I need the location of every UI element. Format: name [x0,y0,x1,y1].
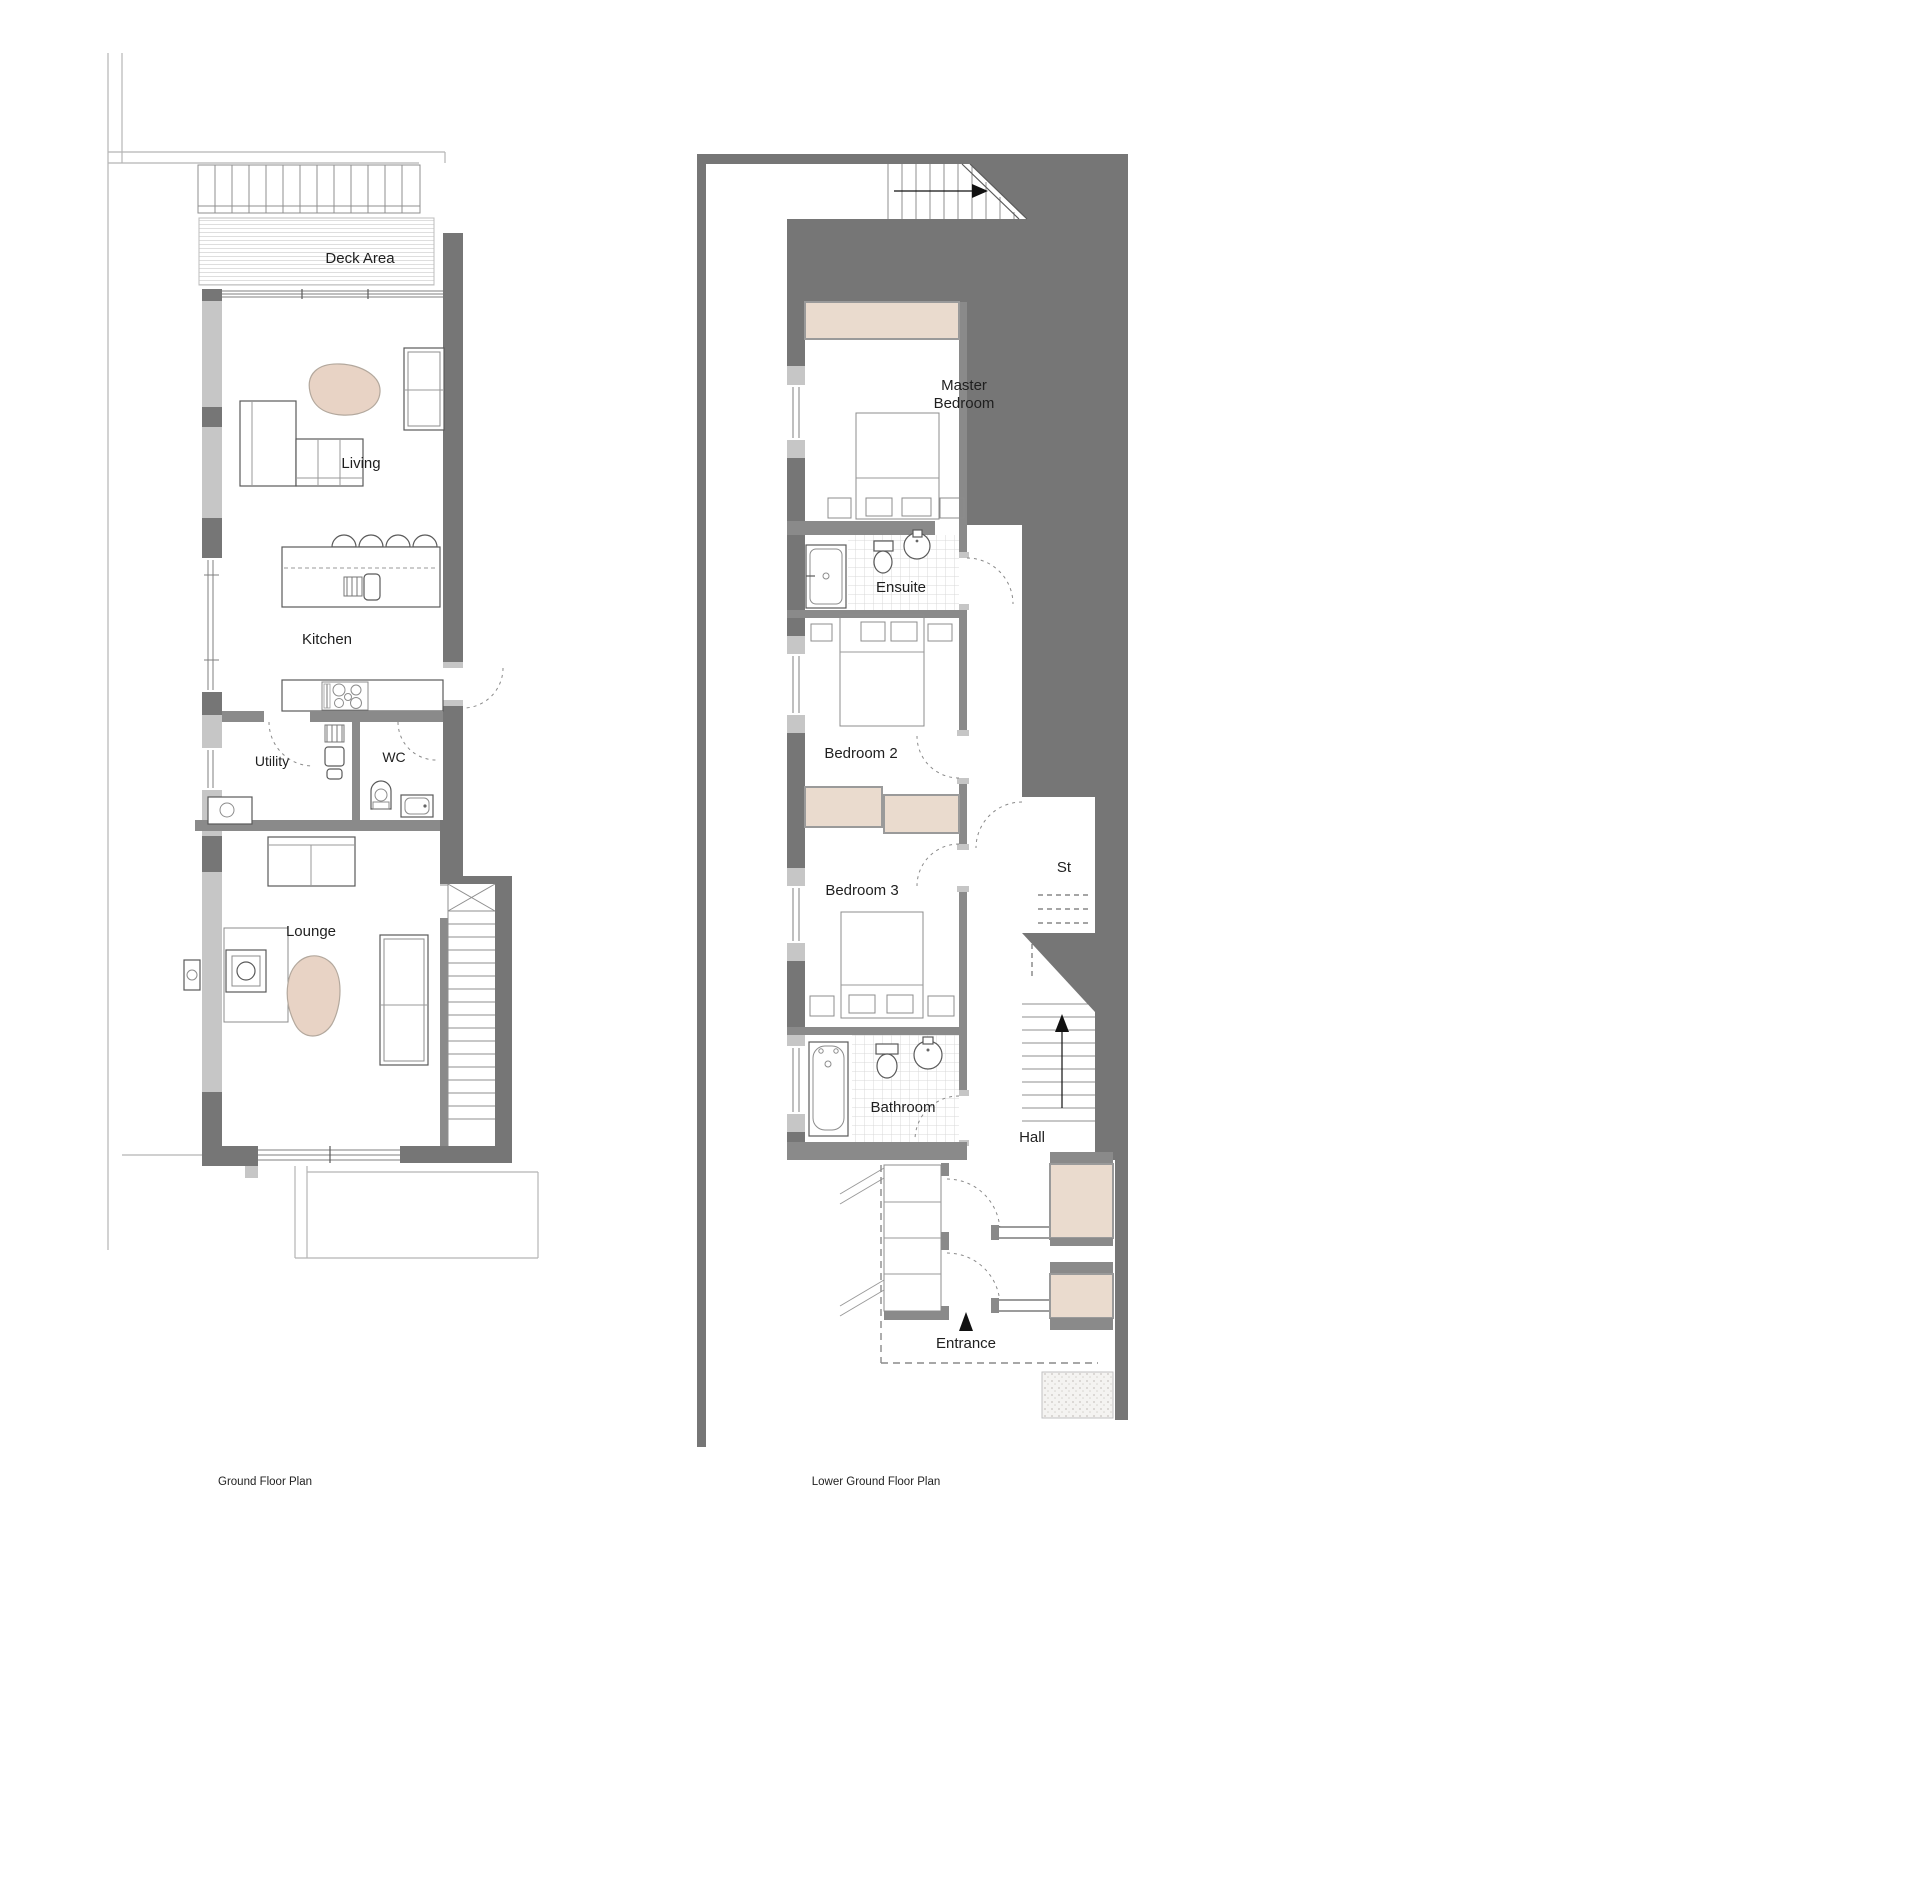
right-wall [443,233,503,884]
storage-shelves [1038,895,1090,923]
storage-door-arc [976,802,1022,848]
island-drainer [344,577,362,596]
floor-plan-sheet: Deck Area [0,0,1920,1887]
kitchen: Kitchen [282,535,443,711]
master-wardrobe [805,302,959,339]
entrance-label: Entrance [936,1335,996,1352]
bedroom3-bed [810,912,954,1018]
entrance-mat [1042,1372,1113,1418]
bedroom-3: Bedroom 3 [810,844,959,1018]
bedroom2-door-arc [917,736,959,778]
ensuite-door-arc [967,558,1013,604]
ensuite: Ensuite [806,530,1013,610]
bathroom-label: Bathroom [870,1099,935,1116]
toilet-icon [371,781,391,809]
deck-area: Deck Area [199,218,434,285]
bathroom-tiles [852,1035,959,1142]
closet-section-marks [840,1168,884,1316]
wc-label: WC [382,749,405,765]
stair-direction-arrow [894,184,988,198]
media-unit [404,348,444,430]
deck-area-label: Deck Area [325,250,395,267]
utility-label: Utility [255,753,289,769]
wood-stove-icon [184,928,288,1022]
master-bedroom-label-2: Bedroom [934,395,995,412]
stairs-up-arrow [1055,1014,1069,1108]
deck-stairs [198,165,420,213]
utility-room: Utility [208,725,344,824]
kitchen-counter [282,680,443,711]
lower-ground-floor-caption: Lower Ground Floor Plan [812,1476,940,1488]
lower-ground-floor-plan: Master Bedroom [697,154,1128,1488]
master-bedroom-label-1: Master [941,377,987,394]
master-bed [828,413,964,519]
bedroom-2: Bedroom 2 [811,615,959,778]
internal-stairs-lower [1022,933,1095,1121]
ensuite-toilet-icon [874,541,893,573]
ground-floor-caption: Ground Floor Plan [218,1476,312,1488]
internal-stairs-ground [448,884,495,1148]
kitchen-island [282,547,440,607]
utility-sink [208,797,252,824]
entrance-side-walls [1050,1152,1113,1330]
room-walls [787,302,969,1160]
bedroom2-bed [811,615,952,726]
bottom-wall [202,1114,512,1178]
bathroom-toilet-icon [876,1044,898,1078]
ground-floor-plan: Deck Area [108,53,538,1488]
bar-stools [332,535,437,547]
living-room: Living [240,348,444,486]
lounge-label: Lounge [286,923,336,940]
kitchen-label: Kitchen [302,631,352,648]
ensuite-label: Ensuite [876,579,926,596]
lounge-rug [287,956,340,1036]
daybed [380,935,428,1065]
shower-icon [806,545,846,608]
stair-annex [440,820,512,1163]
bedroom-wardrobes [805,787,959,833]
entrance-arrow [959,1312,973,1331]
lounge-sofa [268,837,355,886]
wc-basin [401,795,433,817]
wc-room: WC [371,749,433,817]
bedroom3-label: Bedroom 3 [825,882,898,899]
top-window-wall [202,289,443,301]
entrance-closet [884,1165,941,1311]
left-wall [202,289,222,1146]
bathroom: Bathroom [809,1035,959,1142]
storage-label: St [1057,859,1072,876]
entrance-area: Entrance [840,1152,1113,1418]
side-door-arc [463,668,503,708]
washer-dryer-stack [325,725,344,779]
hall-label: Hall [1019,1129,1045,1146]
bathtub-icon [809,1042,848,1136]
bedroom3-door-arc [917,844,959,886]
plans-drawing: Deck Area [0,0,1920,1887]
bedroom2-label: Bedroom 2 [824,745,897,762]
living-label: Living [341,455,380,472]
island-sink [364,574,380,600]
entrance-doors [947,1179,1057,1313]
living-rug [309,364,380,415]
